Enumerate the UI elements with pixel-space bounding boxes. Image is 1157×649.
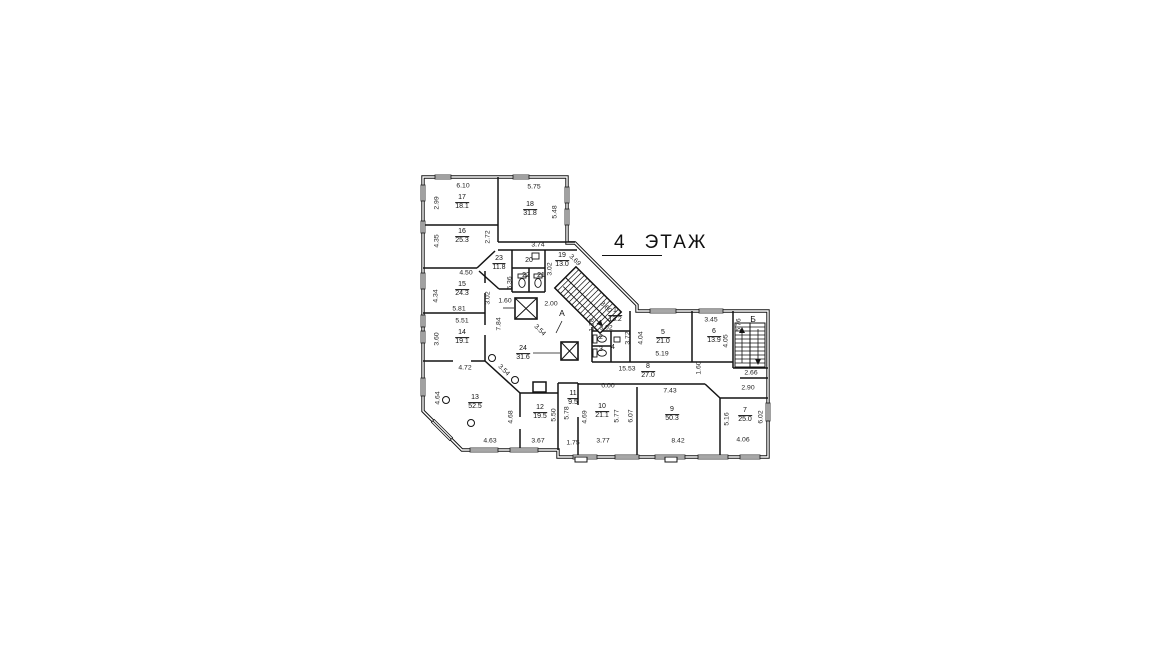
dim-label: 3.02 bbox=[548, 262, 555, 275]
dim-label: 2.66 bbox=[744, 371, 757, 378]
dim-label: 0.00 bbox=[601, 384, 614, 391]
dim-label: 5.50 bbox=[552, 408, 559, 421]
elevator-shaft-icon bbox=[561, 342, 578, 360]
dim-label: 4.63 bbox=[483, 439, 496, 446]
dim-label: 4.04 bbox=[639, 331, 646, 344]
dim-label: 1.60 bbox=[697, 361, 704, 374]
room-label-15: 1524.3 bbox=[455, 281, 469, 299]
dim-label: 5.75 bbox=[527, 185, 540, 192]
room-label-13: 1352.5 bbox=[468, 394, 482, 412]
floor-word: ЭТАЖ bbox=[645, 232, 708, 253]
dim-label: 2.00 bbox=[544, 302, 557, 309]
room-label-23: 2311.8 bbox=[492, 255, 505, 273]
floor-title-underline bbox=[602, 255, 662, 256]
dim-label: 3.02 bbox=[486, 291, 493, 304]
room-label-5: 521.0 bbox=[656, 329, 670, 347]
dim-label: 1.28 bbox=[590, 318, 597, 331]
dim-label: 4.64 bbox=[436, 391, 443, 404]
dim-label: 4.34 bbox=[434, 289, 441, 302]
stair-letter-a: А bbox=[559, 308, 565, 318]
dim-label: 3.02 bbox=[599, 326, 612, 333]
dim-label: 2.99 bbox=[435, 196, 442, 209]
room-label-11: 119.5 bbox=[567, 390, 578, 408]
room-label-9: 950.3 bbox=[665, 406, 679, 424]
dim-label: 1.60 bbox=[498, 299, 511, 306]
floor-title: 4ЭТАЖ bbox=[614, 232, 707, 254]
dim-label: 5.81 bbox=[452, 307, 465, 314]
dim-label: 6.36 bbox=[508, 276, 515, 289]
room-label-12: 1219.5 bbox=[533, 404, 547, 422]
dim-label: 3.74 bbox=[531, 243, 544, 250]
room-label-18: 1831.8 bbox=[523, 201, 537, 219]
room-label-7: 725.0 bbox=[738, 407, 752, 425]
dim-label: 4.50 bbox=[459, 271, 472, 278]
dim-label: 2.90 bbox=[741, 386, 754, 393]
dim-label: 5.77 bbox=[615, 409, 622, 422]
dim-label: 3.77 bbox=[596, 439, 609, 446]
dim-label: 15.53 bbox=[618, 367, 635, 374]
dim-label: 2.72 bbox=[486, 230, 493, 243]
dim-label: 6.02 bbox=[759, 410, 766, 423]
dim-label: 5.51 bbox=[455, 319, 468, 326]
room-label-2: 2 bbox=[599, 334, 603, 342]
room-label-24: 2431.6 bbox=[516, 345, 530, 363]
dim-label: 5.78 bbox=[565, 406, 572, 419]
room-label-22: 22 bbox=[522, 272, 530, 280]
dim-label: 5.48 bbox=[553, 205, 560, 218]
dim-label: 5.16 bbox=[725, 412, 732, 425]
room-label-4: 4 bbox=[611, 344, 615, 352]
dim-label: 4.72 bbox=[458, 366, 471, 373]
room-label-6: 613.9 bbox=[707, 328, 721, 346]
room-label-14: 1419.1 bbox=[455, 329, 469, 347]
dim-label: 6.07 bbox=[629, 409, 636, 422]
room-label-10: 1021.1 bbox=[595, 403, 609, 421]
floor-number: 4 bbox=[614, 232, 627, 254]
dim-label: 4.06 bbox=[736, 438, 749, 445]
floorplan-page: 4ЭТАЖ 1718.1 1831.8 1625.3 2311.8 20 191… bbox=[0, 0, 1157, 649]
dim-label: 5.76 bbox=[737, 318, 744, 331]
dim-label: 3.72 bbox=[626, 331, 633, 344]
room-label-20: 20 bbox=[525, 257, 533, 265]
dim-label: 4.35 bbox=[435, 234, 442, 247]
room-label-16: 1625.3 bbox=[455, 228, 469, 246]
elevator-shaft-icon bbox=[515, 298, 537, 319]
dim-label: 4.68 bbox=[509, 410, 516, 423]
dim-label: 7.43 bbox=[663, 389, 676, 396]
room-label-21: 21 bbox=[537, 272, 545, 280]
room-label-3: 3 bbox=[599, 346, 603, 354]
dim-label: 4.69 bbox=[583, 410, 590, 423]
dim-label: 3.67 bbox=[531, 439, 544, 446]
dim-label: 6.10 bbox=[456, 184, 469, 191]
dim-label: 5.19 bbox=[655, 352, 668, 359]
stair-letter-b: Б bbox=[750, 314, 756, 324]
dim-label: 1.75 bbox=[566, 441, 579, 448]
room-label-17: 1718.1 bbox=[455, 194, 469, 212]
room-label-8: 827.0 bbox=[641, 363, 655, 381]
dim-label: 3.60 bbox=[435, 332, 442, 345]
room-label-19: 1913.0 bbox=[555, 252, 569, 270]
dim-label: 3.45 bbox=[704, 318, 717, 325]
dim-label: 8.42 bbox=[671, 439, 684, 446]
dim-label: 7.84 bbox=[497, 317, 504, 330]
dim-label: 4.05 bbox=[724, 334, 731, 347]
